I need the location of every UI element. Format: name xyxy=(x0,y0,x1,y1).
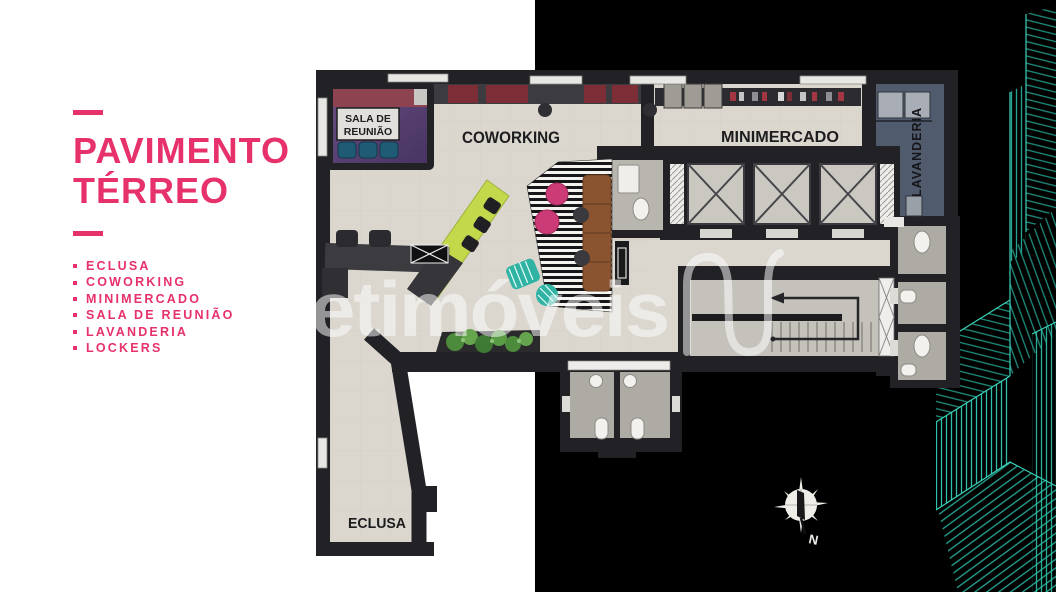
feature-item-minimercado: MINIMERCADO xyxy=(73,291,313,307)
accent-dash-bottom xyxy=(73,231,103,236)
title-line-2: TÉRREO xyxy=(73,170,229,211)
watermark-text: etimóveis xyxy=(310,265,668,353)
feature-item-lockers: LOCKERS xyxy=(73,340,313,356)
label-lavanderia: LAVANDERIA xyxy=(910,107,924,197)
info-panel: PAVIMENTO TÉRREO ECLUSA COWORKING MINIME… xyxy=(73,110,313,356)
feature-item-coworking: COWORKING xyxy=(73,274,313,290)
label-eclusa: ECLUSA xyxy=(348,516,407,532)
staircase xyxy=(690,278,894,356)
compass-rose: N xyxy=(774,477,828,548)
feature-item-sala-de-reuniao: SALA DE REUNIÃO xyxy=(73,307,313,323)
bottom-wc-rooms xyxy=(562,361,680,439)
feature-item-lavanderia: LAVANDERIA xyxy=(73,324,313,340)
label-sala-line1: SALA DE xyxy=(345,113,391,125)
page-title: PAVIMENTO TÉRREO xyxy=(73,131,313,211)
right-wc-rooms xyxy=(890,226,946,380)
label-coworking: COWORKING xyxy=(462,128,560,147)
title-line-1: PAVIMENTO xyxy=(73,130,290,171)
slide: COWORKING MINIMERCADO ECLUSA LAVANDERIA … xyxy=(0,0,1056,592)
feature-list: ECLUSA COWORKING MINIMERCADO SALA DE REU… xyxy=(73,258,313,356)
label-minimercado: MINIMERCADO xyxy=(721,129,839,146)
accent-dash-top xyxy=(73,110,103,115)
label-sala-line2: REUNIÃO xyxy=(344,125,392,138)
compass-north-label: N xyxy=(807,531,819,548)
feature-item-eclusa: ECLUSA xyxy=(73,258,313,274)
